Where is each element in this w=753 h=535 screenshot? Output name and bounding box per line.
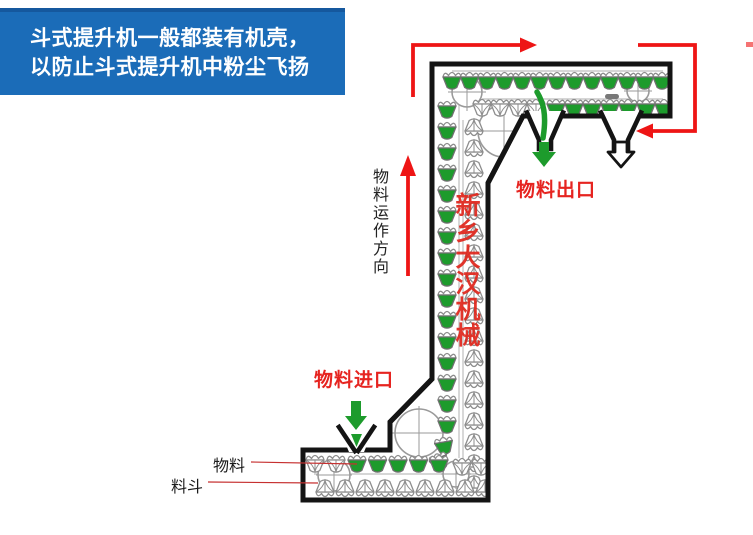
material-label: 物料 (213, 452, 245, 476)
inlet-label: 物料进口 (314, 365, 394, 392)
bucket-elevator-diagram: 斗式提升机一般都装有机壳， 以防止斗式提升机中粉尘飞扬 (0, 0, 753, 535)
flow-up-arrow (400, 155, 416, 276)
bucket-label: 料斗 (171, 473, 203, 497)
watermark: 新乡大汉机械 (447, 192, 483, 348)
flow-direction-label: 物料运作方向 (369, 168, 388, 276)
outlet-label: 物料出口 (516, 175, 596, 202)
belt-clamp-icon (605, 94, 619, 99)
